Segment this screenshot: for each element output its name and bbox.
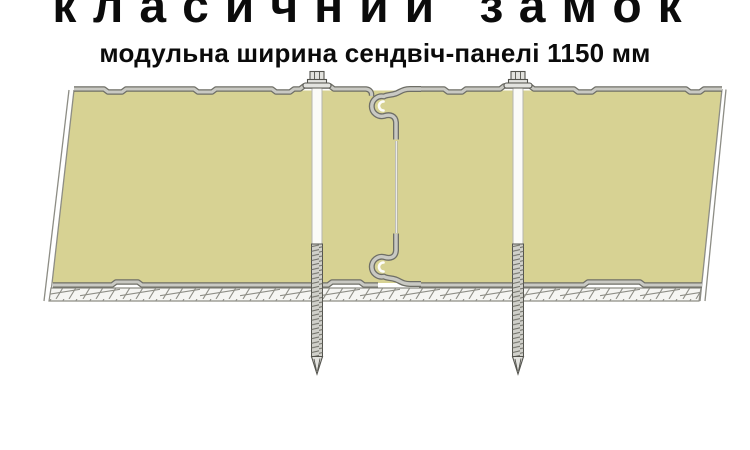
facing-bottom-left — [53, 282, 378, 285]
panel-lock-diagram — [0, 0, 750, 450]
drill-tip — [312, 357, 323, 375]
facing-top-right — [419, 86, 722, 92]
facing-bottom-right — [419, 282, 702, 285]
panel-left — [52, 91, 397, 284]
panel-right — [397, 91, 723, 284]
sealing-washer — [303, 83, 331, 88]
